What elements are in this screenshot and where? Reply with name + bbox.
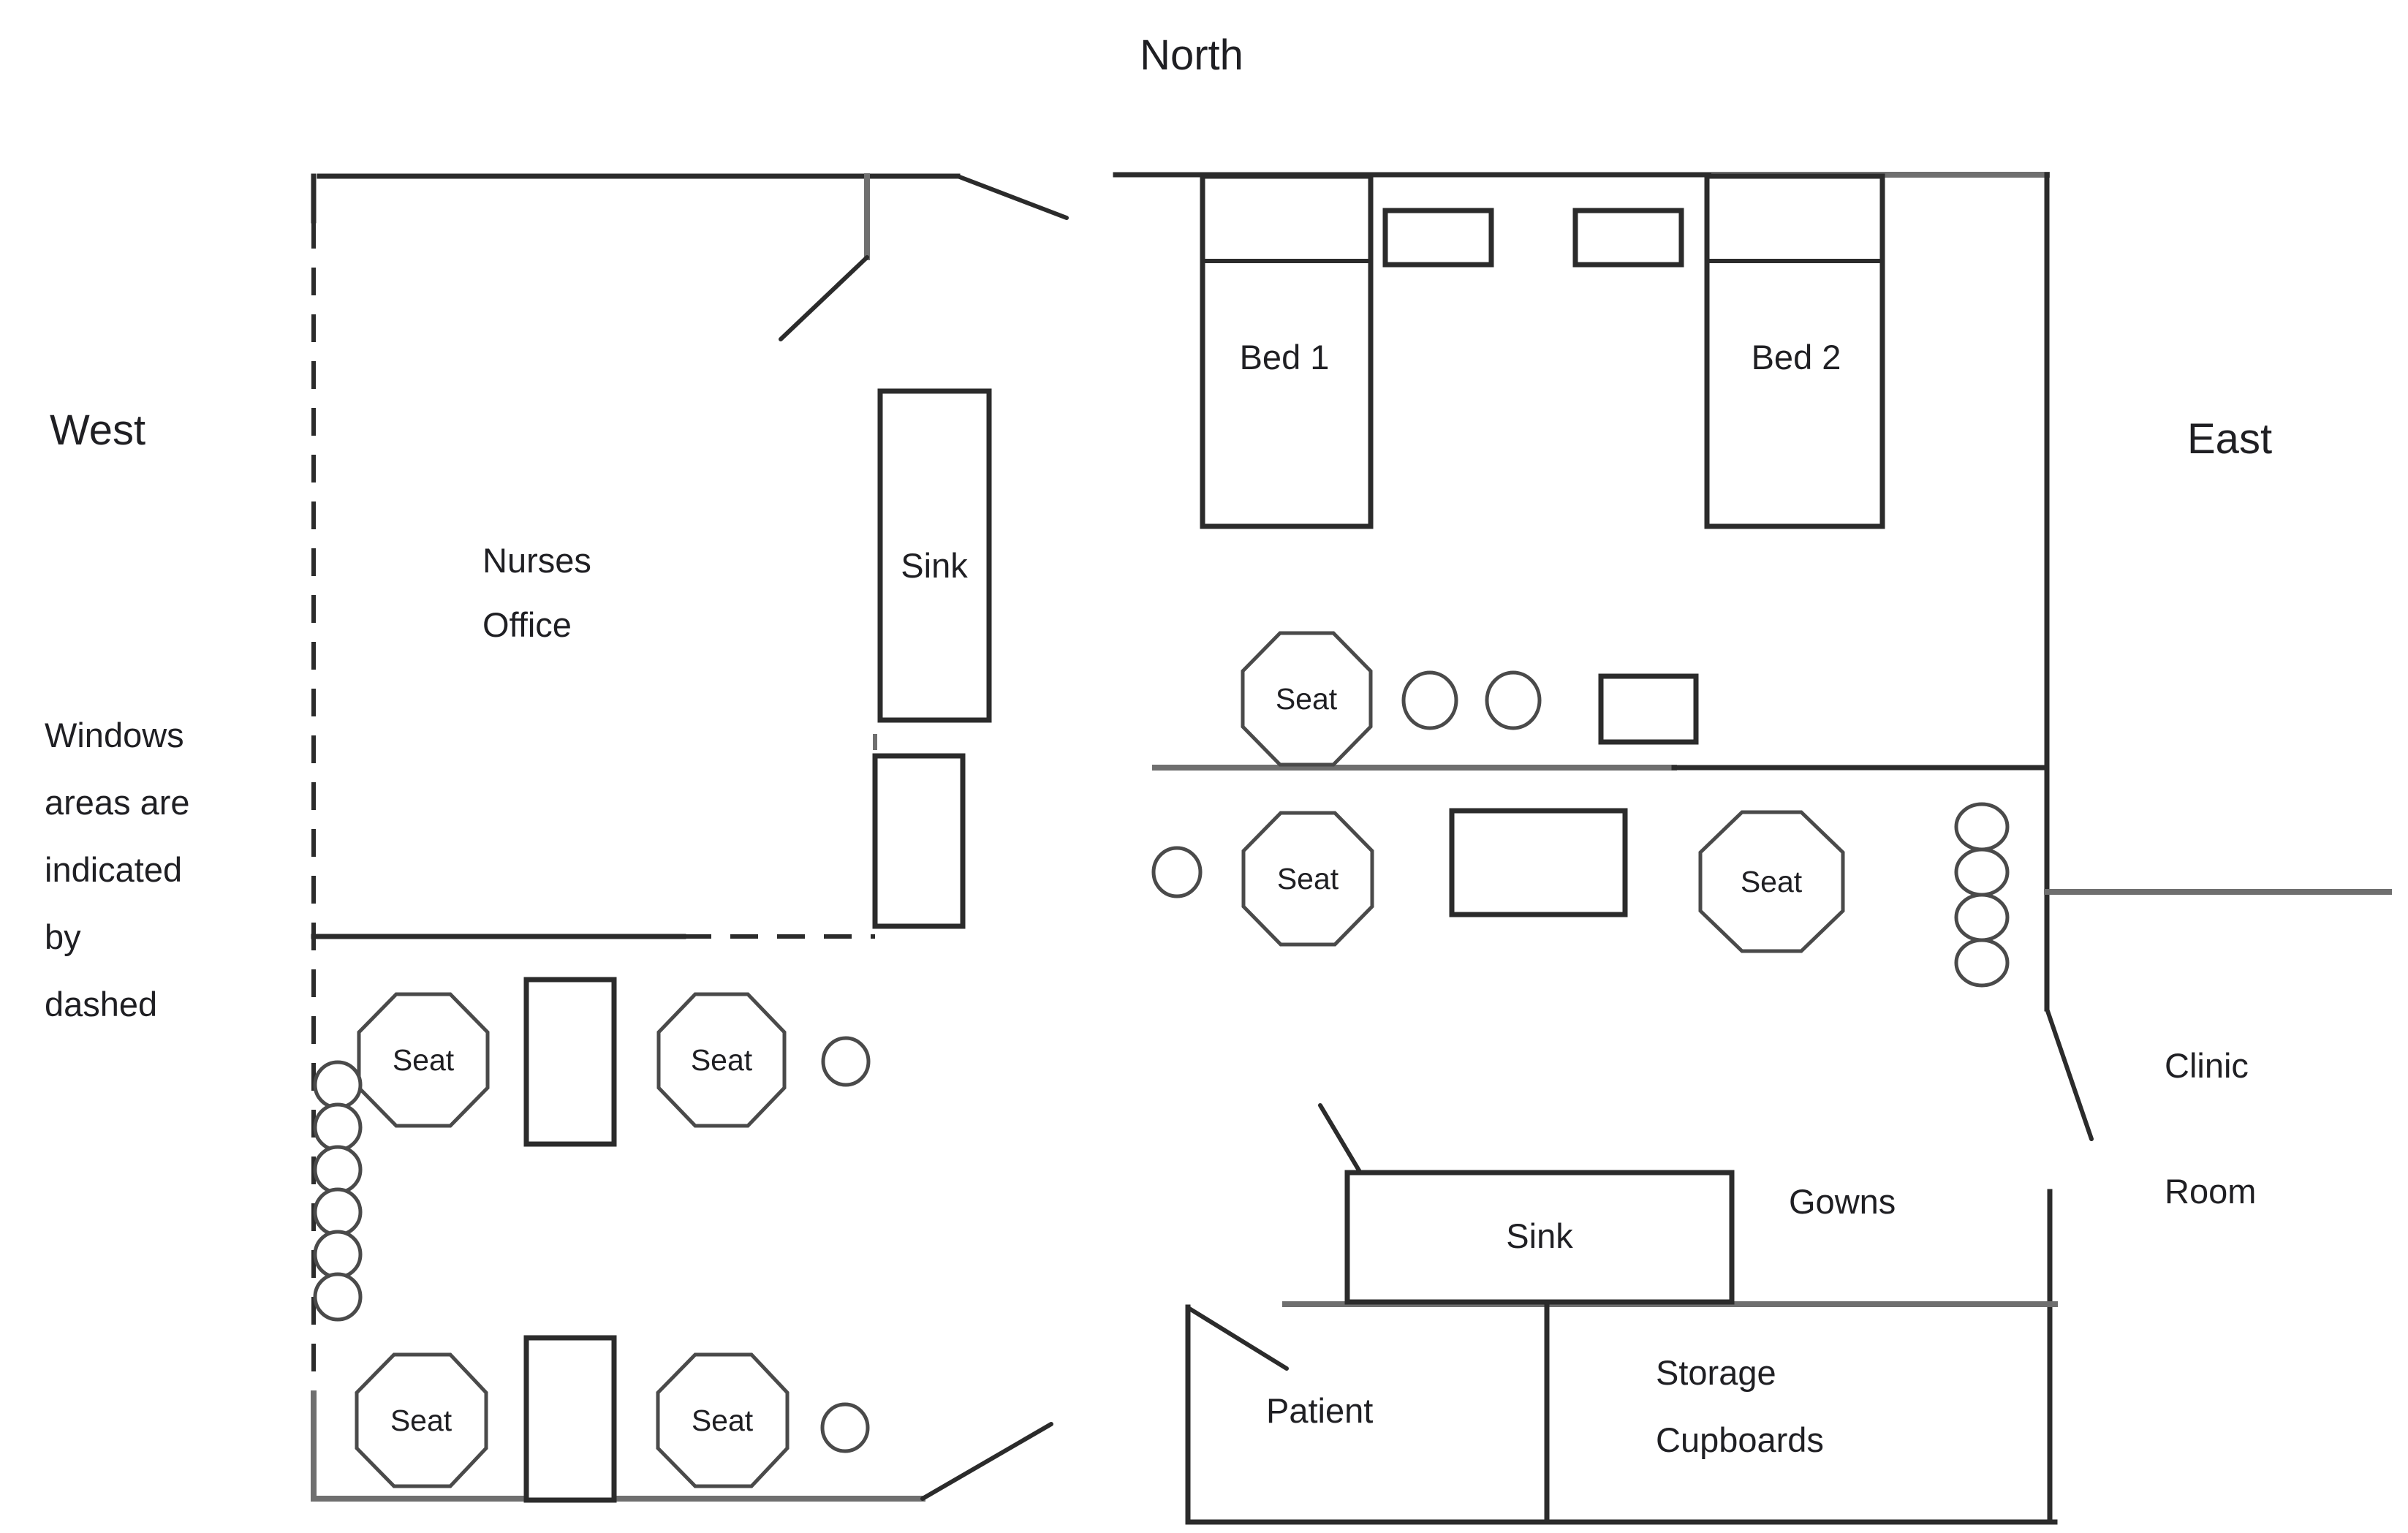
stool-circle-west-3 <box>315 1147 360 1192</box>
nurses-sink-label: Sink <box>901 546 968 585</box>
patient-label: Patient <box>1266 1391 1373 1430</box>
nurses-office-label-line1: Nurses <box>482 541 591 580</box>
stool-circle-east-2 <box>1956 849 2007 895</box>
floor-plan: North West East Windows areas are indica… <box>0 0 2408 1533</box>
stool-circle-west-2 <box>315 1105 360 1150</box>
stool-circle-west-6 <box>315 1274 360 1320</box>
table-waiting-row1 <box>526 980 614 1144</box>
seat-label-4: Seat <box>393 1043 455 1077</box>
seat-label-3: Seat <box>1741 865 1803 898</box>
counter-unit-below-sink <box>875 756 963 926</box>
treatment-sink-label: Sink <box>1506 1216 1573 1255</box>
stool-circle-waiting-row1 <box>823 1038 868 1085</box>
gowns-label: Gowns <box>1789 1182 1896 1221</box>
floor-plan-canvas: North West East Windows areas are indica… <box>0 0 2408 1533</box>
window-note-line-4: by <box>45 917 81 956</box>
seat-label-1: Seat <box>1276 682 1338 716</box>
waiting-area-door-leaf <box>923 1424 1051 1499</box>
seat-label-2: Seat <box>1277 862 1339 896</box>
bed1-label: Bed 1 <box>1240 338 1330 376</box>
seat-label-6: Seat <box>390 1404 453 1437</box>
storage-label-line1: Storage <box>1656 1353 1776 1392</box>
compass-west-label: West <box>50 406 145 454</box>
compass-north-label: North <box>1140 31 1243 79</box>
window-note-line-5: dashed <box>45 985 157 1023</box>
stool-circle-east-1 <box>1956 804 2007 849</box>
window-note: Windows areas are indicated by dashed <box>45 716 190 1023</box>
stool-circle-west-4 <box>315 1189 360 1235</box>
compass-east-label: East <box>2187 415 2272 463</box>
stool-circle-west-5 <box>315 1232 360 1277</box>
gowns-area-door-leaf <box>1320 1105 1361 1174</box>
stool-circle-east-4 <box>1956 940 2007 985</box>
seat-label-7: Seat <box>692 1404 754 1437</box>
stool-circle-waiting-row2 <box>822 1404 868 1451</box>
window-note-line-3: indicated <box>45 850 182 889</box>
clinic-room-label-line2: Room <box>2165 1172 2256 1211</box>
table-ward-row2 <box>1452 811 1625 915</box>
nurses-office-label-line2: Office <box>482 605 572 644</box>
seat-label-5: Seat <box>691 1043 753 1077</box>
stool-circle-ward-row2 <box>1154 848 1200 896</box>
storage-label-line2: Cupboards <box>1656 1420 1824 1459</box>
ward-entrance-door-leaf <box>958 176 1067 218</box>
stool-circle-east-3 <box>1956 895 2007 940</box>
window-note-line-1: Windows <box>45 716 184 754</box>
window-note-line-2: areas are <box>45 783 190 822</box>
nightstand-2 <box>1575 211 1681 265</box>
stool-stack-west <box>315 1062 360 1320</box>
clinic-room-door-leaf <box>2047 1009 2091 1139</box>
table-waiting-row2 <box>526 1338 614 1500</box>
stool-circle-ward-row1-b <box>1487 673 1540 728</box>
stool-stack-east <box>1956 804 2007 985</box>
stool-circle-west-1 <box>315 1062 360 1108</box>
stool-circle-ward-row1-a <box>1404 673 1456 728</box>
patient-room-door-leaf <box>1189 1309 1287 1369</box>
nurses-office-door-leaf <box>781 257 867 339</box>
nightstand-1 <box>1385 211 1491 265</box>
side-table-ward-row1 <box>1601 676 1696 742</box>
clinic-room-label-line1: Clinic <box>2165 1046 2249 1085</box>
bed2-label: Bed 2 <box>1752 338 1841 376</box>
